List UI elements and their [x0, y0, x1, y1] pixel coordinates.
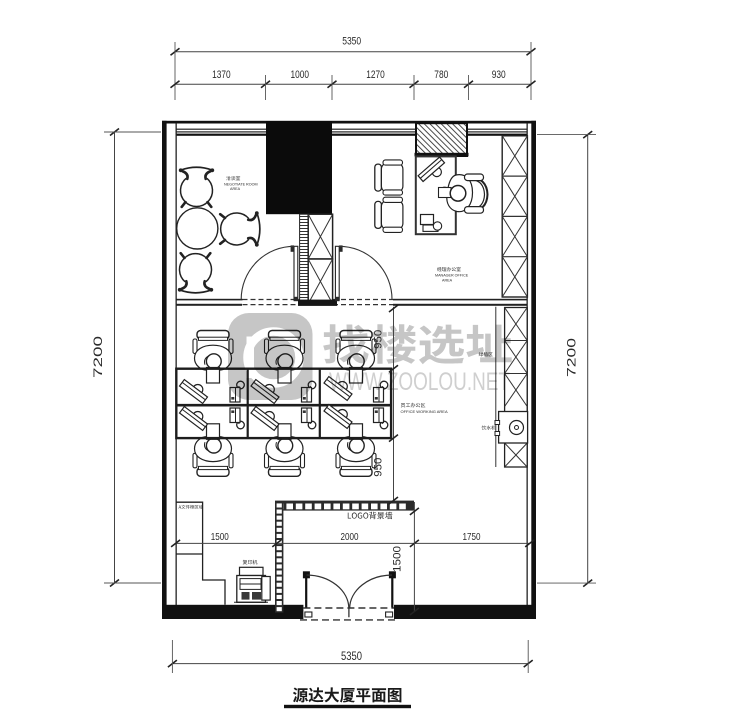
svg-text:5350: 5350 [341, 651, 362, 663]
svg-text:OFFICE WORKING AREA: OFFICE WORKING AREA [401, 409, 448, 414]
svg-text:1370: 1370 [212, 69, 231, 81]
svg-text:7200: 7200 [565, 338, 579, 377]
svg-text:1500: 1500 [211, 531, 229, 543]
svg-text:1000: 1000 [291, 69, 310, 81]
svg-text:1750: 1750 [463, 531, 481, 543]
svg-text:1500: 1500 [392, 546, 404, 572]
svg-text:5350: 5350 [342, 36, 361, 48]
svg-text:7200: 7200 [91, 335, 105, 378]
svg-text:950: 950 [373, 458, 385, 477]
svg-text:WWW.ZOOLOU.NET: WWW.ZOOLOU.NET [329, 368, 510, 396]
svg-text:930: 930 [492, 69, 506, 81]
svg-text:AREA: AREA [230, 187, 241, 191]
svg-text:780: 780 [434, 69, 448, 81]
svg-text:MANAGER OFFICE: MANAGER OFFICE [435, 274, 469, 278]
svg-text:2000: 2000 [341, 531, 359, 543]
svg-text:NEGOTIATE ROOM: NEGOTIATE ROOM [224, 183, 258, 187]
svg-text:1270: 1270 [366, 69, 385, 81]
svg-text:950: 950 [373, 330, 385, 349]
svg-text:AREA: AREA [442, 278, 453, 282]
